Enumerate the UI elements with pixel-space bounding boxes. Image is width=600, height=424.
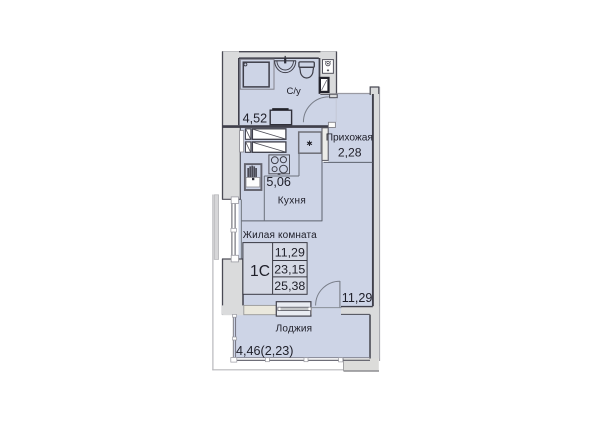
svg-text:Прихожая: Прихожая [326, 132, 373, 143]
svg-text:2,28: 2,28 [338, 146, 362, 160]
svg-text:Кухня: Кухня [278, 196, 306, 207]
svg-text:Жилая комната: Жилая комната [243, 230, 317, 241]
svg-text:5,06: 5,06 [266, 175, 291, 189]
svg-text:4,52: 4,52 [243, 112, 268, 126]
svg-text:23,15: 23,15 [274, 262, 305, 276]
svg-text:Лоджия: Лоджия [276, 324, 313, 335]
svg-text:11,29: 11,29 [275, 245, 305, 259]
svg-text:С/у: С/у [286, 86, 301, 97]
svg-text:11,29: 11,29 [342, 291, 373, 305]
svg-text:4,46(2,23): 4,46(2,23) [236, 344, 293, 358]
svg-text:25,38: 25,38 [274, 279, 305, 293]
svg-text:1С: 1С [250, 263, 270, 280]
